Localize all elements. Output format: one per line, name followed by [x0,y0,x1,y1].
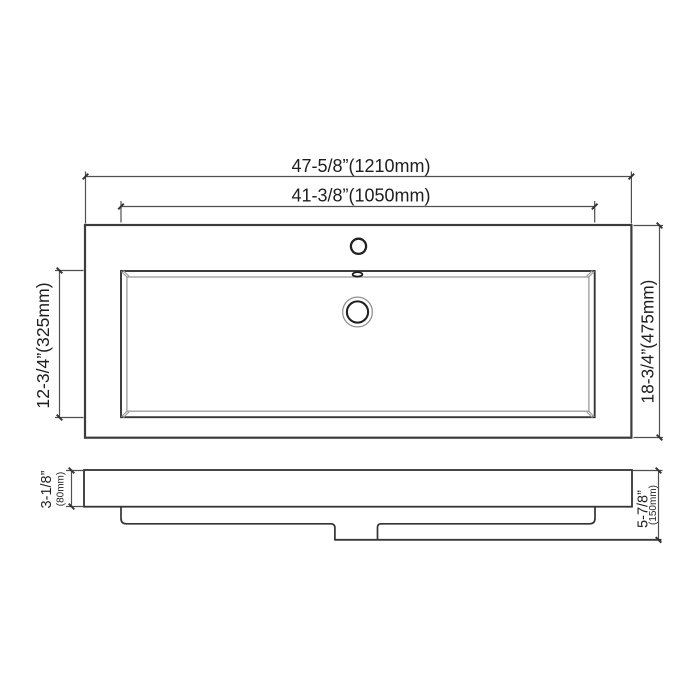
svg-text:3-1/8”: 3-1/8” [39,470,55,508]
svg-text:(80mm): (80mm) [56,472,67,506]
svg-text:18-3/4”(475mm): 18-3/4”(475mm) [638,280,658,404]
svg-text:47-5/8”(1210mm): 47-5/8”(1210mm) [291,156,430,176]
svg-text:12-3/4”(325mm): 12-3/4”(325mm) [33,282,53,408]
svg-text:(150mm): (150mm) [648,485,659,525]
svg-text:41-3/8”(1050mm): 41-3/8”(1050mm) [291,186,430,206]
